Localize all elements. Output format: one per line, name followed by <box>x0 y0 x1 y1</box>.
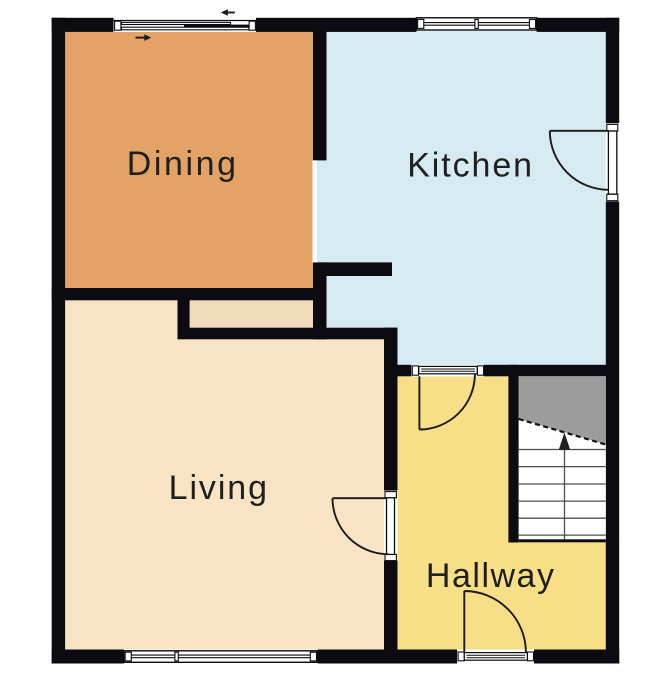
svg-text:Living: Living <box>169 469 269 507</box>
svg-text:Hallway: Hallway <box>426 557 556 595</box>
svg-text:Kitchen: Kitchen <box>407 147 534 185</box>
svg-text:Dining: Dining <box>127 145 239 183</box>
